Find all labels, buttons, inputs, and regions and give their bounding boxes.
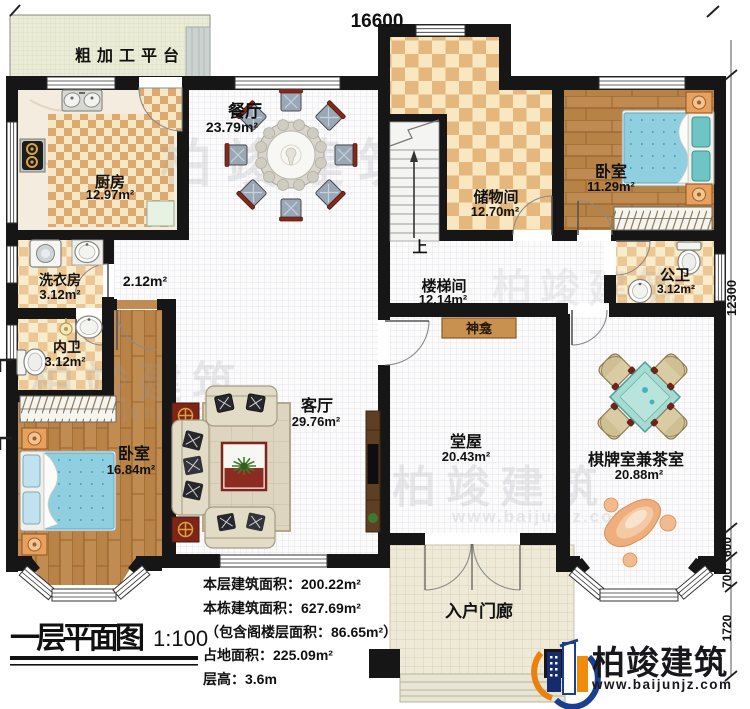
svg-text:本栋建筑面积：627.69m²: 本栋建筑面积：627.69m² [203,600,361,616]
svg-text:入户门廊: 入户门廊 [445,601,513,621]
svg-text:（包含阁楼层面积：86.65m²）: （包含阁楼层面积：86.65m²） [205,624,397,640]
svg-text:柏竣建筑: 柏竣建筑 [592,644,728,681]
svg-text:12.14m²: 12.14m² [419,292,468,307]
svg-text:700: 700 [720,568,734,588]
svg-text:16.84m²: 16.84m² [107,462,156,477]
svg-text:20.43m²: 20.43m² [442,449,491,464]
svg-text:柏竣建筑: 柏竣建筑 [392,463,608,512]
svg-text:3.12m²: 3.12m² [657,282,695,296]
svg-text:1720: 1720 [720,614,734,641]
svg-text:23.79m²: 23.79m² [206,119,258,135]
svg-text:层高：3.6m: 层高：3.6m [203,671,277,687]
svg-text:600: 600 [720,537,734,557]
svg-text:一层平面图: 一层平面图 [10,622,145,655]
svg-text:29.76m²: 29.76m² [292,414,341,429]
svg-text:占地面积：225.09m²: 占地面积：225.09m² [203,647,333,663]
svg-text:12.97m²: 12.97m² [86,187,135,202]
svg-text:www.baijunjz.com: www.baijunjz.com [591,677,733,692]
svg-text:3.12m²: 3.12m² [39,287,81,302]
svg-text:客厅: 客厅 [301,396,333,415]
svg-text:上: 上 [412,239,427,256]
svg-text:16600: 16600 [351,11,404,32]
svg-text:2.12m²: 2.12m² [123,273,168,289]
svg-text:12300: 12300 [724,280,739,316]
svg-text:1:100: 1:100 [153,626,208,651]
svg-text:卧室: 卧室 [118,444,150,463]
svg-text:20.88m²: 20.88m² [615,467,664,482]
svg-text:3.12m²: 3.12m² [44,354,86,369]
svg-text:神龛: 神龛 [466,321,493,336]
svg-text:12.70m²: 12.70m² [471,204,520,219]
svg-text:内卫: 内卫 [53,339,81,355]
svg-text:餐厅: 餐厅 [228,101,262,121]
svg-text:www.baijunjz.com: www.baijunjz.com [451,507,631,526]
svg-text:11.29m²: 11.29m² [587,179,635,194]
svg-text:粗加工平台: 粗加工平台 [75,46,185,65]
svg-text:本层建筑面积：200.22m²: 本层建筑面积：200.22m² [203,576,361,592]
svg-text:洗衣房: 洗衣房 [39,272,81,288]
